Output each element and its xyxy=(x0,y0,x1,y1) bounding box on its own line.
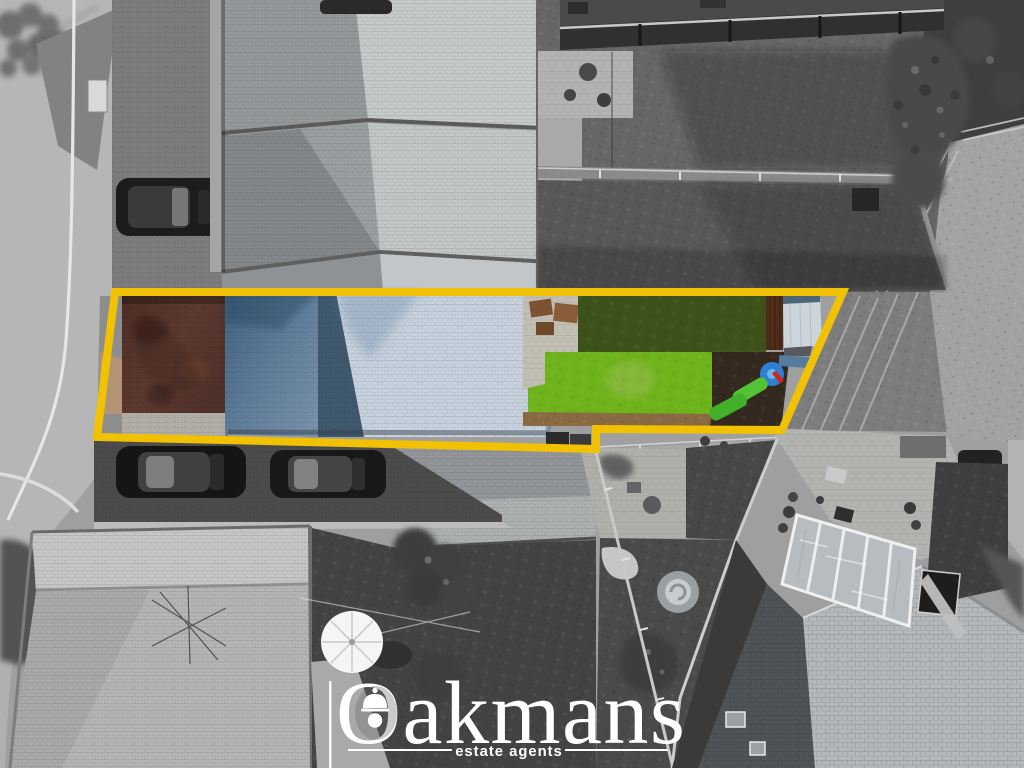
svg-text:estate agents: estate agents xyxy=(455,744,563,760)
